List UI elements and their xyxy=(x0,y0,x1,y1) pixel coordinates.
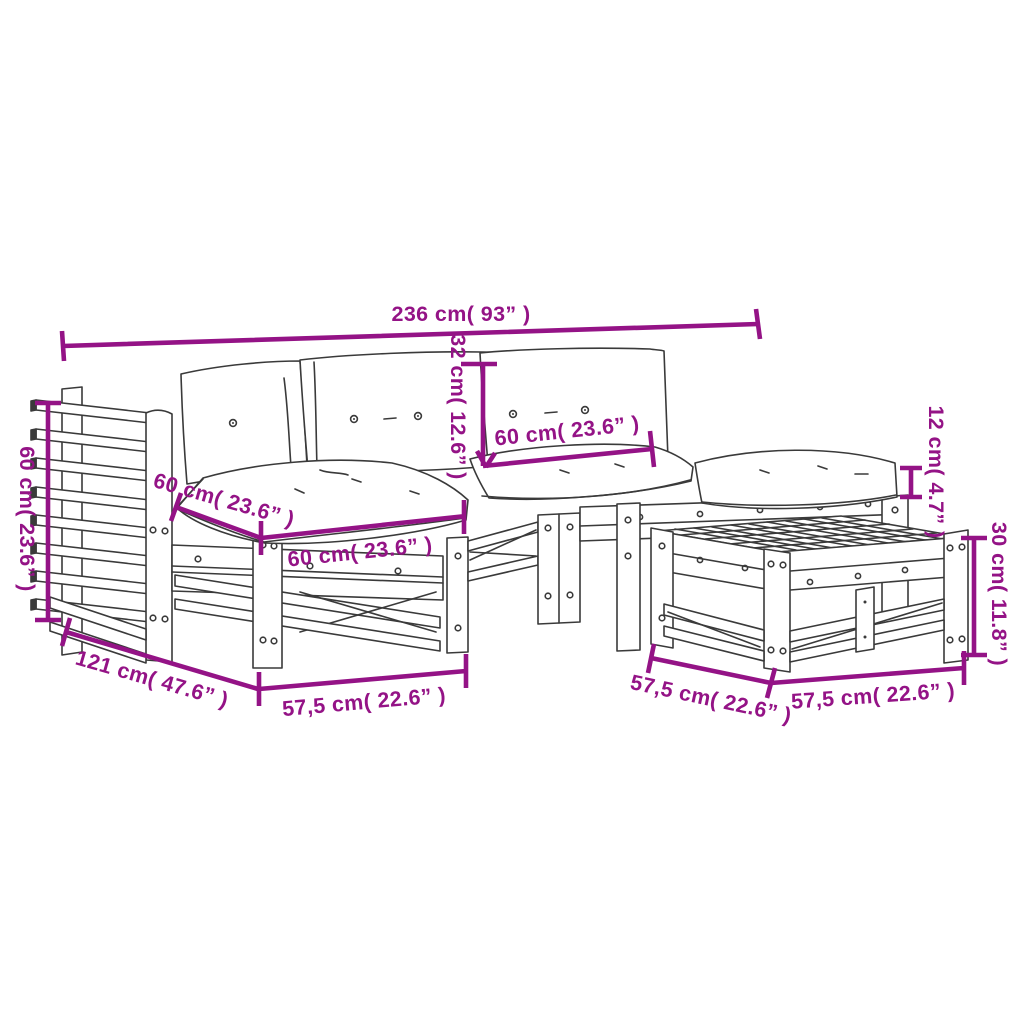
leg xyxy=(617,503,640,651)
slat-end-cap xyxy=(31,599,36,610)
cushion-tuft-dash xyxy=(545,412,557,413)
panel-post-front xyxy=(146,410,172,662)
cushion-button-dot xyxy=(584,409,586,411)
slat-end-cap xyxy=(31,429,36,440)
mid-post xyxy=(856,587,874,652)
dimension-label-overall-width: 236 cm( 93” ) xyxy=(391,302,530,326)
dimension-label-backrest-height: 60 cm( 23.6” ) xyxy=(15,446,39,591)
cushion-button-dot xyxy=(417,415,419,417)
dimension-label-cushion-thickness: 12 cm( 4.7” ) xyxy=(924,405,948,538)
product-dimensions-diagram: 236 cm( 93” ) 60 cm( 23.6” ) 32 cm( 12.6… xyxy=(0,0,1024,1024)
seat-cushion-middle xyxy=(470,444,693,499)
furniture-drawing xyxy=(31,348,968,672)
diagram-canvas: 236 cm( 93” ) 60 cm( 23.6” ) 32 cm( 12.6… xyxy=(0,0,1024,1024)
dimension-label-footstool-depth: 57,5 cm( 22.6” ) xyxy=(628,670,794,728)
cushion-button-dot xyxy=(232,422,234,424)
panel-slat xyxy=(36,487,150,510)
dimension-label-footstool-width: 57,5 cm( 22.6” ) xyxy=(790,678,955,713)
panel-slat xyxy=(36,429,150,452)
cushion-tuft-dash xyxy=(384,418,396,419)
panel-slat xyxy=(36,458,150,481)
leg xyxy=(764,549,790,672)
cushion-button-dot xyxy=(353,418,355,420)
cushion-button-dot xyxy=(512,413,514,415)
panel-slat xyxy=(36,543,150,566)
panel-slat xyxy=(36,515,150,538)
dim-line-cushion-thickness xyxy=(900,468,922,497)
back-cushion-middle xyxy=(300,352,506,472)
screw-dot xyxy=(864,636,867,639)
dimension-label-footstool-height: 30 cm( 11.8” ) xyxy=(987,522,1011,666)
dimension-label-module-width: 57,5 cm( 22.6” ) xyxy=(281,683,447,721)
dimension-label-back-cushion-height: 32 cm( 12.6” ) xyxy=(446,334,470,479)
screw-dot xyxy=(864,601,867,604)
rail xyxy=(468,522,538,551)
leg xyxy=(447,537,468,653)
rail xyxy=(468,556,538,581)
panel-slat xyxy=(36,571,150,594)
leg xyxy=(253,529,282,668)
footstool xyxy=(651,516,968,672)
